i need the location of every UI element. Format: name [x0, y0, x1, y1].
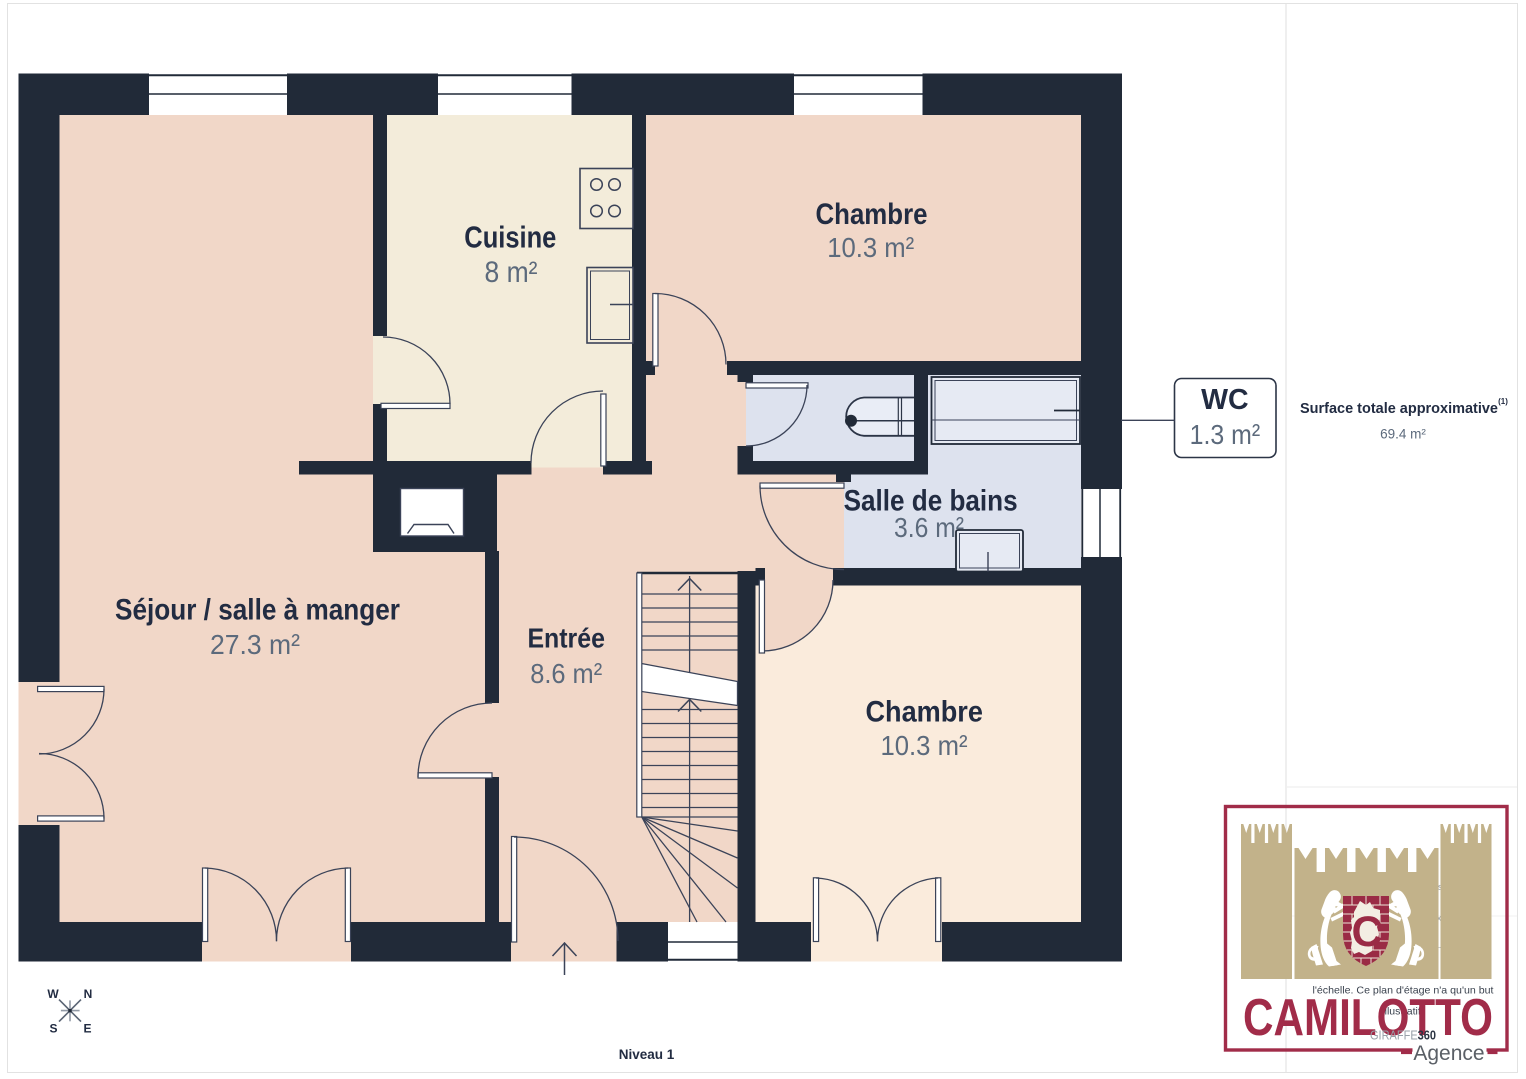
svg-text:Agence: Agence — [1413, 1042, 1484, 1065]
svg-text:3.6 m²: 3.6 m² — [894, 512, 964, 543]
svg-text:Chambre: Chambre — [865, 696, 983, 729]
svg-text:Niveau 1: Niveau 1 — [619, 1047, 675, 1062]
svg-text:Entrée: Entrée — [527, 623, 605, 654]
svg-text:E: E — [83, 1022, 91, 1036]
svg-text:WC: WC — [1201, 384, 1248, 416]
svg-text:8 m²: 8 m² — [485, 256, 538, 289]
svg-text:10.3 m²: 10.3 m² — [881, 730, 968, 761]
svg-text:Séjour / salle à manger: Séjour / salle à manger — [115, 594, 400, 627]
svg-text:(1): (1) — [1498, 397, 1508, 406]
svg-text:S: S — [49, 1022, 57, 1036]
svg-text:10.3 m²: 10.3 m² — [827, 232, 914, 263]
svg-text:GIRAFFE360: GIRAFFE360 — [1370, 1029, 1436, 1043]
svg-text:W: W — [47, 987, 59, 1001]
svg-text:69.4 m²: 69.4 m² — [1380, 427, 1426, 442]
svg-text:1.3 m²: 1.3 m² — [1190, 419, 1261, 450]
svg-text:Cuisine: Cuisine — [464, 220, 556, 255]
svg-text:Chambre: Chambre — [816, 198, 928, 231]
svg-text:CAMILOTTO: CAMILOTTO — [1243, 989, 1493, 1047]
svg-text:8.6 m²: 8.6 m² — [530, 658, 602, 689]
svg-text:Surface totale approximative: Surface totale approximative — [1300, 401, 1498, 417]
svg-text:N: N — [84, 987, 93, 1001]
svg-text:27.3 m²: 27.3 m² — [210, 629, 300, 660]
svg-text:C: C — [1351, 908, 1382, 956]
